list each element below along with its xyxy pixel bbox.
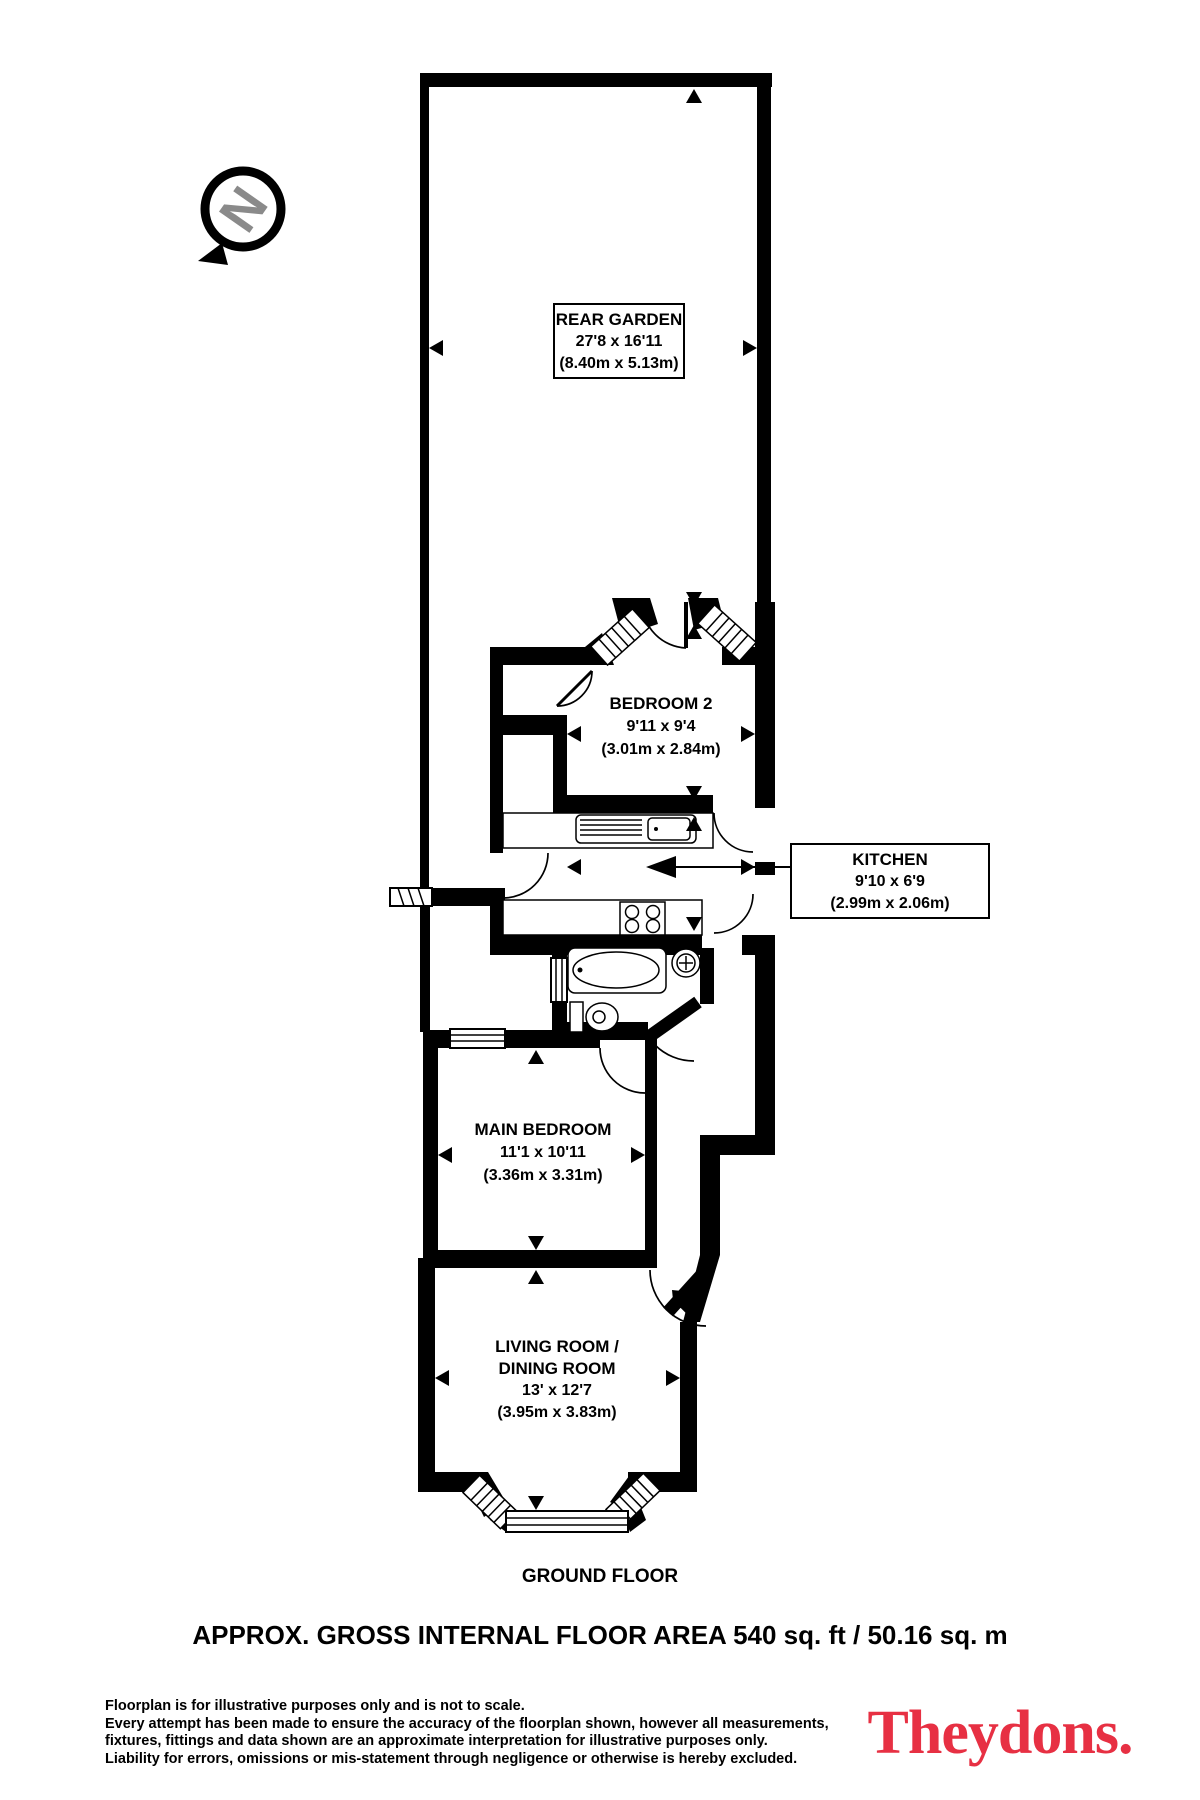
window-main-bedroom	[450, 1029, 505, 1048]
kitchen-hob-counter	[503, 900, 702, 935]
main-bedroom-door-arc	[600, 1048, 645, 1093]
window-living-bay-center	[506, 1511, 628, 1532]
toilet-icon	[570, 1002, 618, 1032]
disclaimer-text: Floorplan is for illustrative purposes o…	[105, 1698, 829, 1768]
kitchen-side-door-arc	[503, 853, 548, 898]
room-size-imperial: 9'11 x 9'4	[571, 715, 751, 738]
living-room-label: LIVING ROOM / DINING ROOM 13' x 12'7 (3.…	[462, 1336, 652, 1424]
room-size-metric: (2.99m x 2.06m)	[792, 893, 988, 915]
floorplan-drawing: N	[0, 0, 1200, 1800]
basin-icon	[672, 949, 700, 977]
room-size-imperial: 11'1 x 10'11	[448, 1141, 638, 1164]
room-name-line2: DINING ROOM	[462, 1358, 652, 1380]
kitchen-door-bottom-arc	[714, 894, 753, 933]
room-size-imperial: 27'8 x 16'11	[555, 331, 683, 353]
kitchen-door-top-arc	[714, 813, 753, 852]
room-name: REAR GARDEN	[555, 309, 683, 331]
bathroom-door-arc	[655, 1045, 694, 1061]
kitchen-label: KITCHEN 9'10 x 6'9 (2.99m x 2.06m)	[790, 843, 990, 919]
disclaimer-line: Floorplan is for illustrative purposes o…	[105, 1698, 829, 1716]
bedroom2-label: BEDROOM 2 9'11 x 9'4 (3.01m x 2.84m)	[571, 692, 751, 761]
walls	[418, 73, 775, 1492]
room-size-metric: (3.95m x 3.83m)	[462, 1402, 652, 1424]
room-size-metric: (3.01m x 2.84m)	[571, 738, 751, 761]
room-name: LIVING ROOM /	[462, 1336, 652, 1358]
disclaimer-line: fixtures, fittings and data shown are an…	[105, 1733, 829, 1751]
window-bathroom	[551, 958, 567, 1002]
disclaimer-line: Liability for errors, omissions or mis-s…	[105, 1751, 829, 1769]
north-arrow-icon: N	[198, 171, 281, 265]
floorplan-page: N	[0, 0, 1200, 1800]
room-size-imperial: 9'10 x 6'9	[792, 871, 988, 893]
room-size-imperial: 13' x 12'7	[462, 1380, 652, 1402]
room-name: MAIN BEDROOM	[448, 1118, 638, 1141]
room-size-metric: (8.40m x 5.13m)	[555, 353, 683, 375]
room-name: KITCHEN	[792, 849, 988, 871]
area-summary: APPROX. GROSS INTERNAL FLOOR AREA 540 sq…	[100, 1620, 1100, 1651]
kitchen-sink-counter	[503, 813, 713, 848]
brand-logo: Theydons.	[852, 1698, 1148, 1769]
window-hall-side	[390, 888, 432, 906]
rear-garden-label: REAR GARDEN 27'8 x 16'11 (8.40m x 5.13m)	[553, 303, 685, 379]
disclaimer-line: Every attempt has been made to ensure th…	[105, 1716, 829, 1734]
main-bedroom-label: MAIN BEDROOM 11'1 x 10'11 (3.36m x 3.31m…	[448, 1118, 638, 1187]
bathtub-icon	[568, 948, 666, 993]
room-size-metric: (3.36m x 3.31m)	[448, 1164, 638, 1187]
room-name: BEDROOM 2	[571, 692, 751, 715]
floor-title: GROUND FLOOR	[450, 1566, 750, 1588]
